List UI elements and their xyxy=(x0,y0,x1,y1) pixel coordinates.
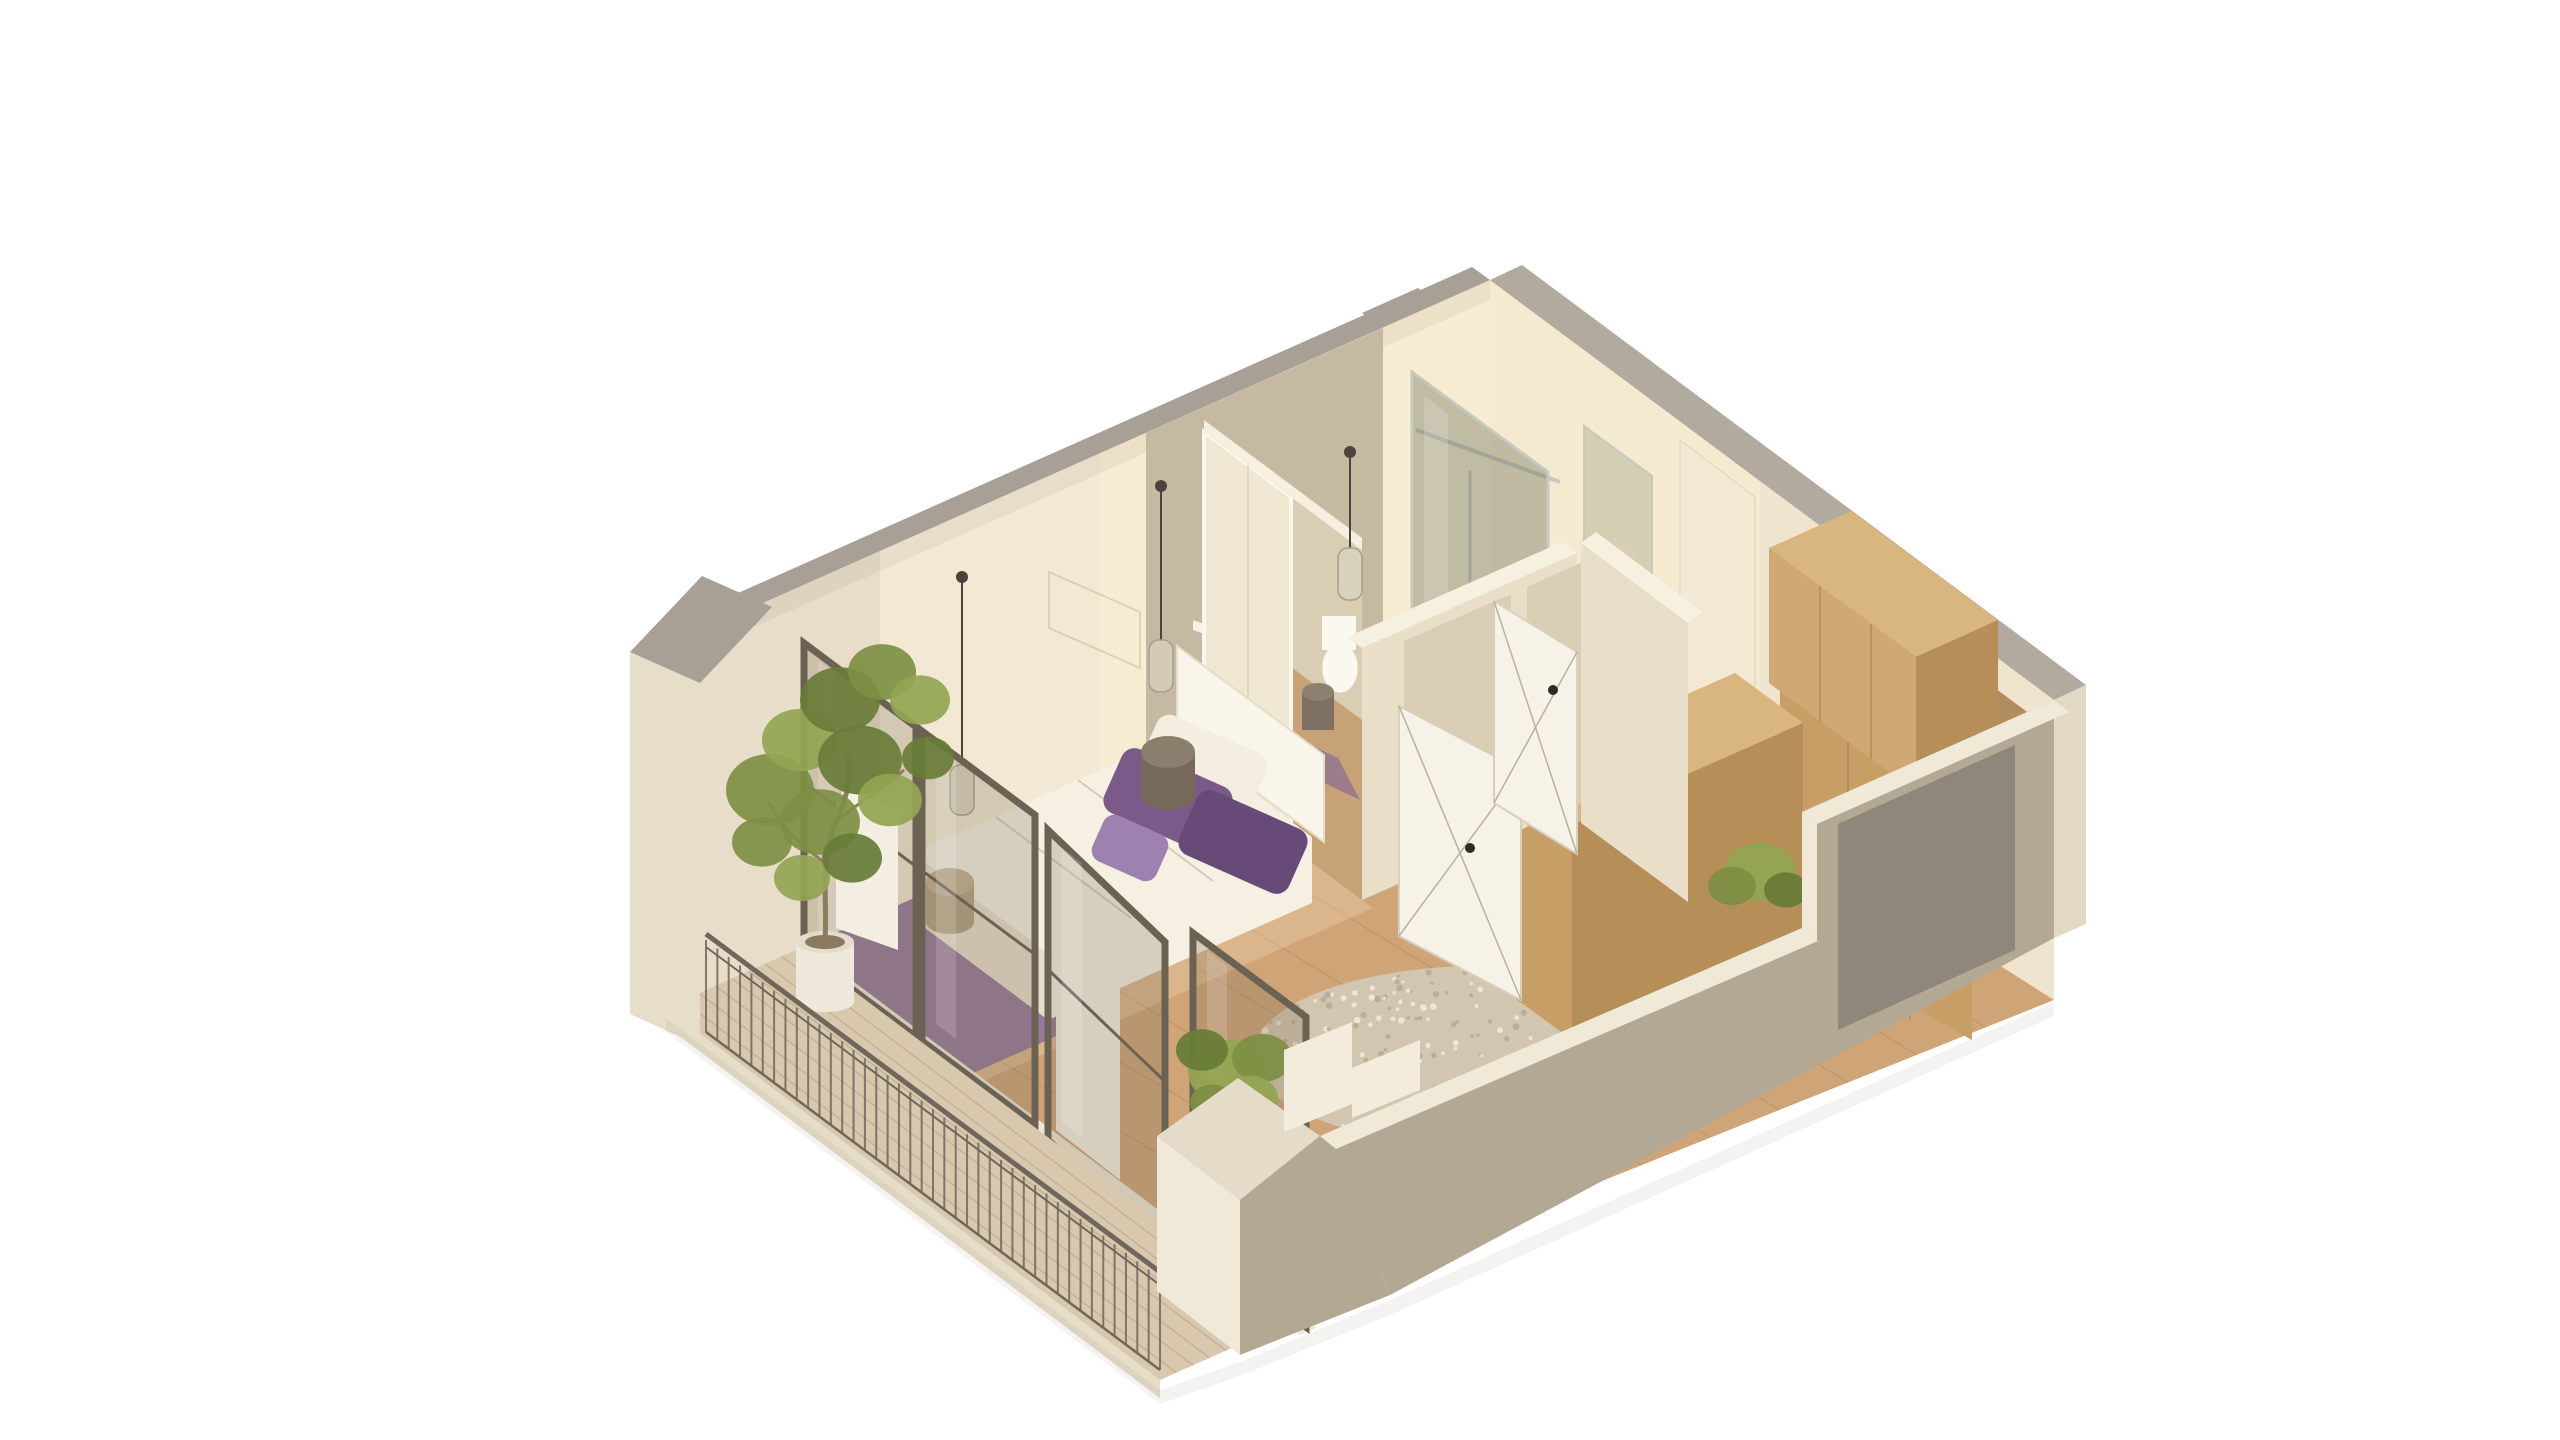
rug-speckle xyxy=(1488,1020,1492,1024)
rug-speckle xyxy=(1361,1012,1367,1018)
rug-speckle xyxy=(1398,1017,1405,1024)
shrub-blob xyxy=(1708,867,1756,905)
rug-speckle xyxy=(1396,1007,1400,1011)
rug-speckle xyxy=(1368,1022,1373,1027)
foliage-blob xyxy=(858,774,922,826)
pendant-glass-shade xyxy=(1149,640,1173,692)
rug-speckle xyxy=(1441,1051,1445,1055)
rug-speckle xyxy=(1426,969,1432,975)
rug-speckle xyxy=(1394,979,1399,984)
shrub-blob xyxy=(1176,1029,1228,1071)
door-1-handle xyxy=(1465,843,1475,853)
foliage-blob xyxy=(732,817,792,866)
wicker-pouf xyxy=(1141,736,1195,810)
rug-speckle xyxy=(1521,1010,1527,1016)
rug-speckle xyxy=(1324,992,1331,999)
rug-speckle xyxy=(1376,1015,1382,1021)
rug-speckle xyxy=(1353,1023,1358,1028)
rug-speckle xyxy=(1431,1053,1437,1059)
rug-speckle xyxy=(1415,1017,1419,1021)
rug-speckle xyxy=(1515,1015,1520,1020)
rug-speckle xyxy=(1529,1036,1533,1040)
rug-speckle xyxy=(1470,1034,1474,1038)
left-end-wall-face xyxy=(630,652,700,1046)
rug-speckle xyxy=(1384,1048,1387,1051)
foliage-blob xyxy=(822,833,882,882)
rug-speckle xyxy=(1480,1054,1483,1057)
shrub-blob xyxy=(1232,1034,1292,1082)
door-2-handle xyxy=(1548,685,1558,695)
glass-reflection xyxy=(1062,848,1082,1138)
rug-speckle xyxy=(1360,1052,1365,1057)
rug-speckle xyxy=(1407,1016,1410,1019)
apartment-3d-render xyxy=(0,0,2560,1440)
rug-speckle xyxy=(1469,993,1473,997)
rug-speckle xyxy=(1313,999,1316,1002)
rug-speckle xyxy=(1453,1040,1459,1046)
rug-speckle xyxy=(1420,1004,1427,1011)
rug-speckle xyxy=(1352,1002,1357,1007)
rug-speckle xyxy=(1398,1000,1402,1004)
rug-speckle xyxy=(1477,986,1483,992)
pendant-glass-shade xyxy=(1338,548,1362,600)
pouf-bottom xyxy=(1141,782,1195,810)
wicker-bin-top xyxy=(1302,683,1334,701)
glass-reflection xyxy=(936,749,956,1039)
rug-speckle xyxy=(1430,981,1434,985)
rug-speckle xyxy=(1386,1034,1391,1039)
rug-speckle xyxy=(1430,1003,1437,1010)
rug-speckle xyxy=(1383,997,1386,1000)
rug-speckle xyxy=(1397,985,1404,992)
front-wall-step-return xyxy=(1802,812,1817,940)
right-end-exterior xyxy=(2054,685,2086,938)
rug-speckle xyxy=(1454,1047,1458,1051)
rug-speckle xyxy=(1374,996,1381,1003)
rug-speckle xyxy=(1513,1023,1520,1030)
rug-speckle xyxy=(1476,1034,1479,1037)
pouf-top xyxy=(1141,736,1195,768)
rug-speckle xyxy=(1418,1016,1422,1020)
rug-speckle xyxy=(1397,974,1400,977)
rug-speckle xyxy=(1455,1020,1459,1024)
foliage-blob xyxy=(890,675,950,724)
rug-speckle xyxy=(1426,1017,1430,1021)
rug-speckle xyxy=(1411,1002,1416,1007)
rug-speckle xyxy=(1475,1004,1479,1008)
foliage-blob xyxy=(902,737,954,780)
rug-speckle xyxy=(1368,994,1375,1001)
rug-speckle xyxy=(1391,1017,1396,1022)
rug-speckle xyxy=(1433,991,1439,997)
rug-speckle xyxy=(1326,1002,1333,1009)
rug-speckle xyxy=(1370,985,1375,990)
rug-speckle xyxy=(1354,1017,1360,1023)
rug-speckle xyxy=(1341,995,1347,1001)
foliage-blob xyxy=(774,855,830,901)
rug-speckle xyxy=(1425,1043,1430,1048)
rug-speckle xyxy=(1406,989,1411,994)
rug-speckle xyxy=(1388,1007,1392,1011)
rug-speckle xyxy=(1504,1036,1509,1041)
shrub-blob xyxy=(1764,872,1808,907)
rug-speckle xyxy=(1445,991,1448,994)
rug-speckle xyxy=(1470,982,1473,985)
rug-speckle xyxy=(1353,990,1358,995)
rug-speckle xyxy=(1497,1027,1503,1033)
rug-speckle xyxy=(1393,991,1396,994)
rug-speckle xyxy=(1327,1027,1331,1031)
rug-speckle xyxy=(1401,980,1404,983)
toilet-tank xyxy=(1322,616,1356,650)
